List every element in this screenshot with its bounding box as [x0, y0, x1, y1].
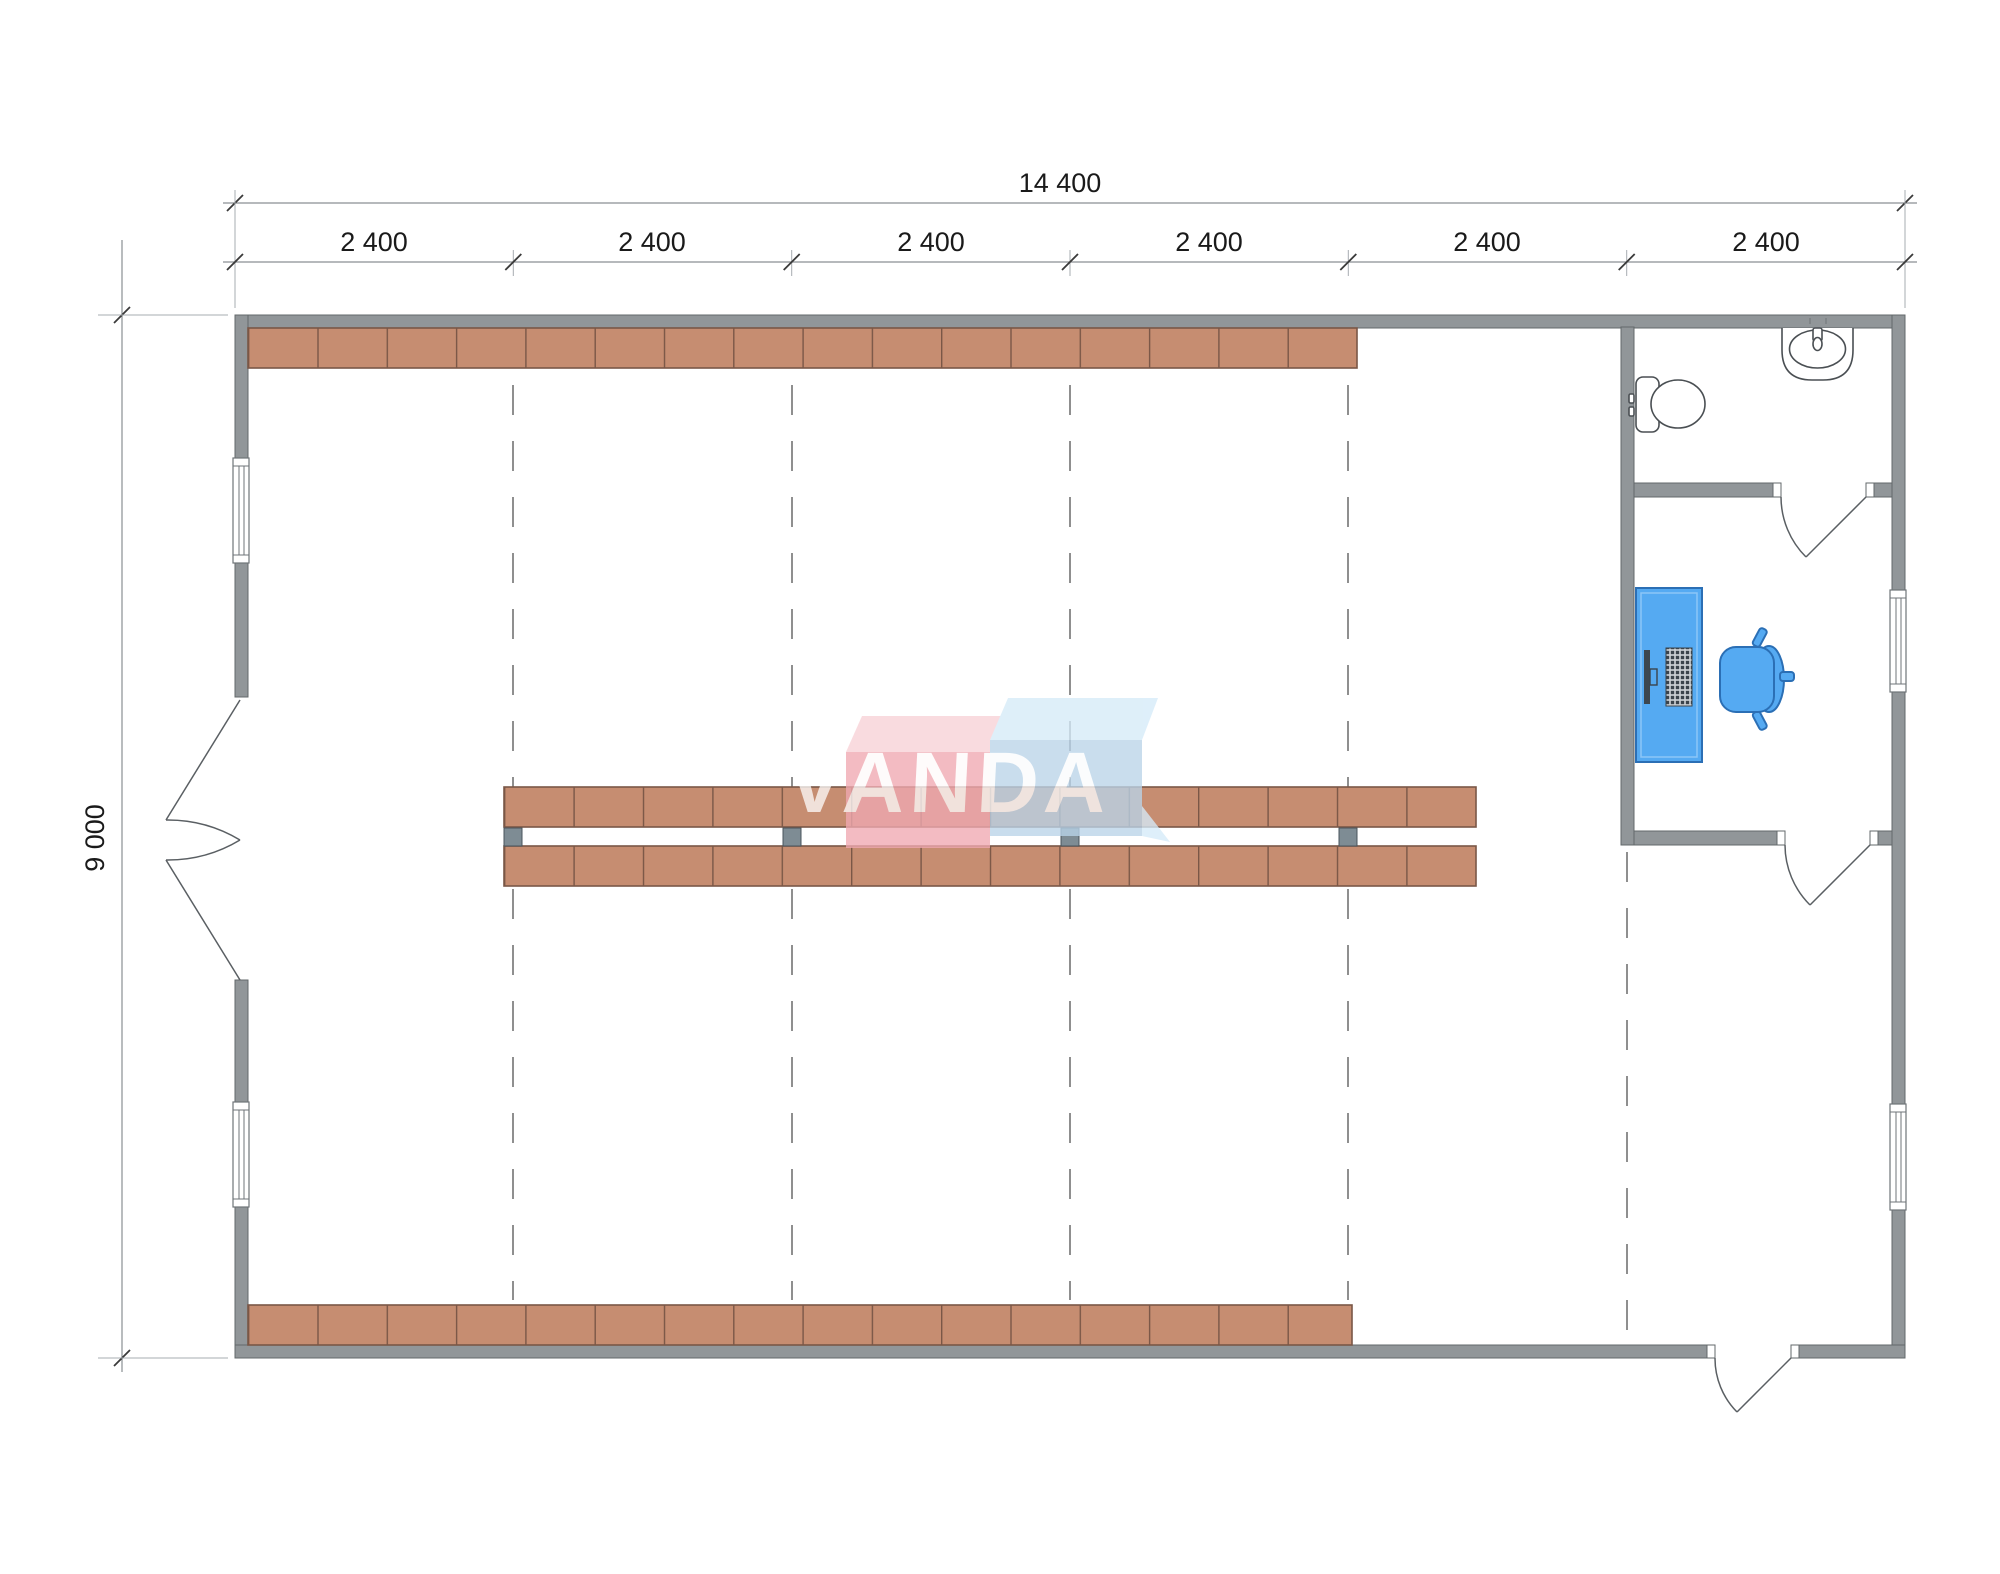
- watermark-cube-blue-top: [990, 698, 1158, 740]
- wall-right: [1892, 692, 1905, 1104]
- wall-left: [235, 563, 248, 697]
- bathroom-fixtures: [1629, 318, 1853, 432]
- chair-armrest: [1752, 627, 1768, 648]
- wall-left: [235, 315, 248, 458]
- doors: [166, 497, 1870, 1412]
- chair-armrest: [1752, 710, 1768, 731]
- door-jamb: [1870, 831, 1878, 845]
- double-door-left: [166, 700, 240, 980]
- office-furniture: [1636, 588, 1794, 762]
- total-height-label: 9 000: [80, 804, 110, 872]
- wall-right: [1892, 1210, 1905, 1358]
- total-width-label: 14 400: [1019, 168, 1102, 198]
- shelf-row-top-wall: [248, 328, 1357, 368]
- door-jamb: [1866, 483, 1874, 497]
- door-bathroom: [1781, 497, 1866, 557]
- monitor: [1644, 650, 1650, 704]
- wall-bottom: [1791, 1345, 1905, 1358]
- window-left-upper: [233, 458, 249, 563]
- wall-right: [1892, 315, 1905, 590]
- wall-bathroom-divider: [1634, 483, 1781, 497]
- bay-label: 2 400: [1175, 227, 1243, 257]
- window-right-upper: [1890, 590, 1906, 692]
- door-office: [1785, 845, 1870, 905]
- wall-office-left: [1621, 327, 1634, 845]
- bay-label: 2 400: [340, 227, 408, 257]
- door-jamb: [1791, 1345, 1799, 1358]
- shelf-post: [504, 828, 522, 846]
- desk: [1636, 588, 1702, 762]
- wall-left: [235, 980, 248, 1102]
- bay-label: 2 400: [1453, 227, 1521, 257]
- toilet: [1629, 377, 1705, 432]
- floor-plan-drawing: 14 400 2 400 2 400 2 400 2 400 2 400 2 4…: [0, 0, 2000, 1574]
- bay-label: 2 400: [618, 227, 686, 257]
- bay-label: 2 400: [897, 227, 965, 257]
- door-exit-bottom: [1715, 1358, 1791, 1412]
- office-chair: [1720, 627, 1794, 731]
- floor-plan-canvas: 14 400 2 400 2 400 2 400 2 400 2 400 2 4…: [0, 0, 2000, 1574]
- interior-walls: [1621, 327, 1892, 1358]
- bay-ticks: [227, 250, 1913, 276]
- wall-top: [235, 315, 1905, 328]
- keyboard: [1666, 648, 1692, 706]
- bay-label: 2 400: [1732, 227, 1800, 257]
- shelf-island-lower-row: [504, 846, 1476, 886]
- chair-seat: [1720, 647, 1774, 712]
- shelf-post: [1339, 828, 1357, 846]
- window-right-lower: [1890, 1104, 1906, 1210]
- watermark-text: VANDA: [784, 735, 1113, 831]
- wall-left: [235, 1207, 248, 1358]
- wall-bottom: [235, 1345, 1715, 1358]
- door-jamb: [1777, 831, 1785, 845]
- door-jamb: [1773, 483, 1781, 497]
- door-jamb: [1707, 1345, 1715, 1358]
- chair-knob: [1780, 672, 1794, 681]
- shelf-row-bottom-wall: [248, 1305, 1352, 1345]
- vanda-watermark: VANDA: [784, 698, 1170, 848]
- wall-office-bottom: [1634, 831, 1785, 845]
- window-left-lower: [233, 1102, 249, 1207]
